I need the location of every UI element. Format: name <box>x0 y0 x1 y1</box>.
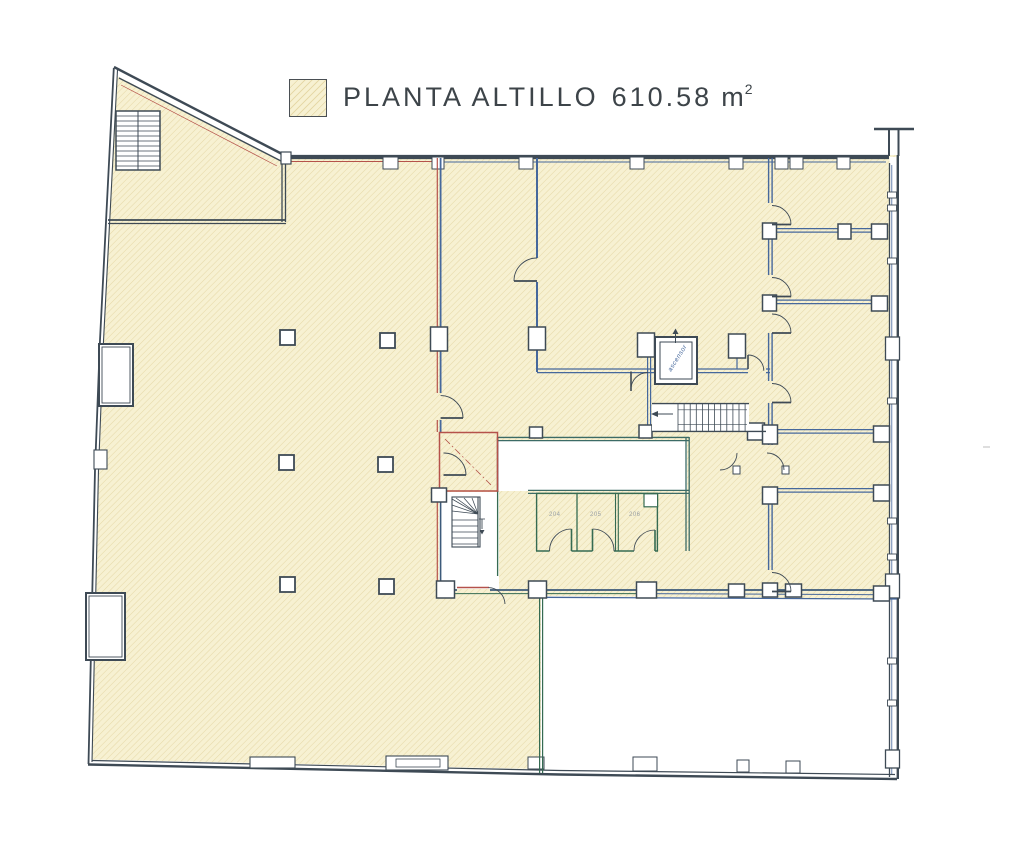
scanned-floor-plan-page: PLANTA ALTILLO 610.58 m2 <box>0 0 1024 868</box>
top-right-wall-stub <box>874 129 914 156</box>
toilet-label-2: 205 <box>590 512 602 518</box>
title-area-value: 610.58 <box>612 82 713 113</box>
floor-plan-drawing: 204 205 206 <box>0 0 1024 868</box>
plan-title-block: PLANTA ALTILLO 610.58 m2 <box>289 79 752 117</box>
large-bottom-right-void <box>541 596 897 778</box>
plan-title: PLANTA ALTILLO 610.58 m2 <box>343 82 752 113</box>
central-room-void <box>497 440 687 491</box>
elevator: ascensor <box>655 329 697 385</box>
toilet-label-1: 204 <box>549 512 561 518</box>
left-window-bay-upper <box>99 344 133 406</box>
left-window-bay-lower <box>86 593 125 660</box>
title-area-unit: m2 <box>721 82 751 113</box>
title-label: PLANTA ALTILLO <box>343 82 599 113</box>
legend-hatch-swatch <box>289 79 327 117</box>
scan-artifact <box>983 446 990 448</box>
stair-central-winder <box>452 497 485 547</box>
stair-top-left <box>116 111 160 170</box>
stair-middle-straight <box>651 404 766 432</box>
toilet-label-3: 206 <box>629 512 641 518</box>
